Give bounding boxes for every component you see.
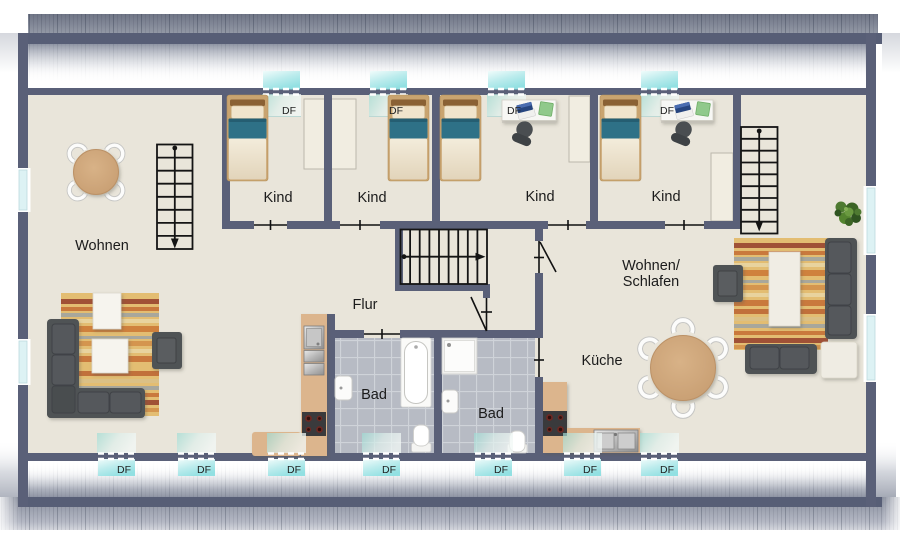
svg-text:Kind: Kind — [651, 189, 680, 205]
svg-text:Kind: Kind — [263, 190, 292, 206]
svg-text:Schlafen: Schlafen — [623, 274, 679, 290]
svg-text:DF: DF — [389, 105, 403, 117]
svg-text:Wohnen/: Wohnen/ — [622, 258, 681, 274]
svg-text:Bad: Bad — [478, 406, 504, 422]
svg-text:DF: DF — [282, 105, 296, 117]
svg-text:Wohnen: Wohnen — [75, 238, 129, 254]
svg-text:Flur: Flur — [353, 297, 378, 313]
svg-text:DF: DF — [660, 105, 674, 117]
svg-text:Bad: Bad — [361, 387, 387, 403]
svg-text:Küche: Küche — [581, 353, 622, 369]
svg-text:DF: DF — [507, 105, 521, 117]
svg-text:Kind: Kind — [357, 190, 386, 206]
svg-text:Kind: Kind — [525, 189, 554, 205]
